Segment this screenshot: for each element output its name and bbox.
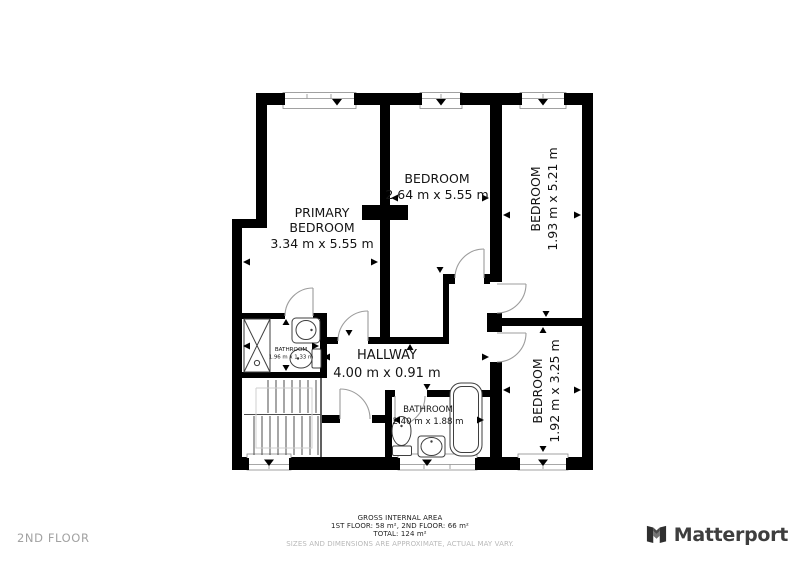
room-dims-primary: 3.34 m x 5.55 m bbox=[270, 236, 373, 251]
dim-arrow-icon bbox=[482, 354, 489, 361]
wall-chimney-stub bbox=[362, 205, 408, 220]
staircase bbox=[244, 378, 321, 457]
wall-closet-left bbox=[322, 415, 340, 423]
wall-divider-primary-mid bbox=[380, 105, 390, 344]
room-label-primary-line1: PRIMARY bbox=[295, 205, 350, 220]
wall-bedroom-mid-bottom-right bbox=[484, 274, 490, 284]
matterport-logo-icon bbox=[645, 523, 668, 546]
dim-arrow-icon bbox=[346, 330, 353, 336]
door-bedroom-ne bbox=[497, 284, 526, 313]
room-label-bedroom-mid: BEDROOM bbox=[404, 171, 469, 186]
wall-hallway-top-right bbox=[368, 337, 445, 344]
room-label-bedroom-se: BEDROOM bbox=[530, 358, 545, 423]
dim-arrow-icon bbox=[543, 311, 550, 317]
wall-outer-left-upper bbox=[256, 93, 267, 228]
room-dims-bedroom-se: 1.92 m x 3.25 m bbox=[547, 339, 562, 442]
wall-bath2-left bbox=[385, 390, 392, 457]
gross-area-title: GROSS INTERNAL AREA bbox=[0, 514, 800, 522]
dim-arrow-icon bbox=[540, 327, 547, 333]
wall-right-door-stub bbox=[487, 313, 502, 332]
wall-right-lower bbox=[490, 362, 502, 457]
dim-arrow-icon bbox=[283, 365, 290, 371]
dim-arrow-icon bbox=[503, 212, 510, 219]
dim-arrow-icon bbox=[437, 267, 444, 273]
dim-arrow-icon bbox=[243, 259, 250, 266]
sink bbox=[292, 318, 320, 343]
floor-plan: PRIMARY BEDROOM 3.34 m x 5.55 m BEDROOM … bbox=[0, 0, 800, 565]
room-label-bathroom-main: BATHROOM bbox=[403, 405, 453, 415]
wall-divider-mid-ne bbox=[490, 105, 502, 282]
wall-bath1-top-left bbox=[242, 313, 285, 319]
room-dims-bedroom-mid: 2.64 m x 5.55 m bbox=[385, 187, 488, 202]
room-dims-bedroom-ne: 1.93 m x 5.21 m bbox=[545, 147, 560, 250]
dim-arrow-icon bbox=[503, 387, 510, 394]
room-label-bathroom-ensuite: BATHROOM bbox=[275, 347, 308, 353]
shower-drain-icon bbox=[254, 360, 259, 365]
door-primary-bedroom bbox=[338, 311, 368, 341]
dim-arrow-icon bbox=[574, 212, 581, 219]
door-ensuite-bathroom bbox=[285, 288, 313, 316]
wall-bath1-bottom bbox=[242, 372, 327, 378]
wall-bath1-right bbox=[320, 313, 327, 378]
door-bedroom-mid bbox=[455, 249, 484, 278]
wall-nook-left bbox=[443, 282, 449, 344]
dim-arrow-icon bbox=[283, 319, 290, 325]
room-label-bedroom-ne: BEDROOM bbox=[528, 166, 543, 231]
dim-arrow-icon bbox=[424, 384, 431, 390]
brand-logo: Matterport bbox=[645, 523, 788, 546]
room-dims-bathroom-ensuite: 1.96 m x 1.33 m bbox=[269, 355, 314, 361]
floor-label: 2ND FLOOR bbox=[17, 531, 90, 545]
door-bedroom-se bbox=[497, 333, 526, 362]
wall-outer-left-lower bbox=[232, 219, 242, 470]
brand-name: Matterport bbox=[674, 524, 788, 546]
dim-arrow-icon bbox=[312, 343, 319, 350]
dim-arrow-icon bbox=[574, 387, 581, 394]
dim-arrow-icon bbox=[540, 446, 547, 452]
door-closet bbox=[340, 389, 370, 419]
room-label-primary-line2: BEDROOM bbox=[289, 220, 354, 235]
sink bbox=[418, 436, 445, 457]
room-dims-bathroom-main: 2.40 m x 1.88 m bbox=[392, 417, 463, 427]
wall-outer-right bbox=[582, 93, 593, 470]
dim-arrow-icon bbox=[371, 259, 378, 266]
wall-divider-ne-se bbox=[502, 318, 582, 326]
room-label-hallway: HALLWAY bbox=[357, 348, 417, 363]
room-dims-hallway: 4.00 m x 0.91 m bbox=[333, 366, 440, 381]
window bbox=[283, 93, 357, 109]
